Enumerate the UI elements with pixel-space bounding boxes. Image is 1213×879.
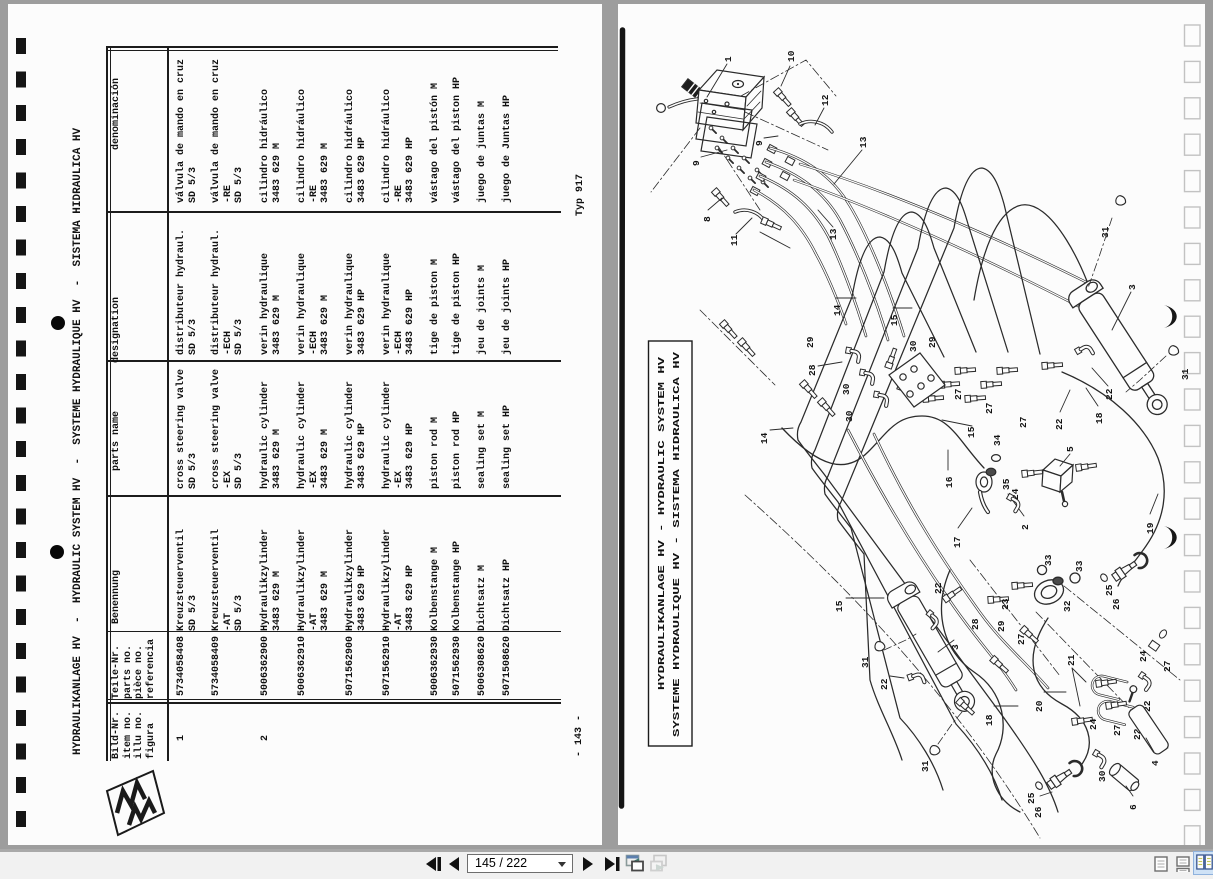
svg-text:18: 18 bbox=[984, 714, 995, 726]
svg-text:28: 28 bbox=[970, 618, 981, 630]
svg-text:9: 9 bbox=[754, 140, 765, 146]
svg-text:8: 8 bbox=[702, 216, 713, 222]
svg-text:35: 35 bbox=[1001, 478, 1012, 490]
svg-text:22: 22 bbox=[1054, 418, 1065, 430]
svg-text:17: 17 bbox=[952, 536, 963, 548]
svg-text:27: 27 bbox=[1016, 633, 1027, 645]
svg-text:31: 31 bbox=[860, 656, 871, 668]
svg-text:29: 29 bbox=[927, 336, 938, 348]
svg-text:24: 24 bbox=[1088, 718, 1099, 730]
svg-text:22: 22 bbox=[879, 678, 890, 690]
svg-text:6: 6 bbox=[1128, 804, 1139, 810]
svg-text:12: 12 bbox=[820, 94, 831, 106]
svg-text:23: 23 bbox=[1000, 598, 1011, 610]
svg-text:HYDRAULIKANLAGE HV - HYDRAUL: HYDRAULIKANLAGE HV - HYDRAULIC SYSTEM HV bbox=[656, 357, 667, 690]
svg-text:14: 14 bbox=[759, 432, 770, 444]
svg-text:16: 16 bbox=[944, 476, 955, 488]
svg-text:5: 5 bbox=[1065, 446, 1076, 452]
svg-text:31: 31 bbox=[1180, 368, 1191, 380]
svg-text:24: 24 bbox=[1138, 650, 1149, 662]
svg-text:1: 1 bbox=[723, 56, 734, 62]
svg-text:29: 29 bbox=[805, 336, 816, 348]
svg-text:10: 10 bbox=[786, 50, 797, 62]
svg-text:30: 30 bbox=[908, 340, 919, 352]
svg-text:28: 28 bbox=[807, 364, 818, 376]
svg-text:15: 15 bbox=[966, 426, 977, 438]
svg-text:32: 32 bbox=[1062, 600, 1073, 612]
svg-text:26: 26 bbox=[1111, 598, 1122, 610]
svg-text:27: 27 bbox=[1018, 416, 1029, 428]
svg-text:14: 14 bbox=[832, 304, 843, 316]
svg-text:33: 33 bbox=[1043, 554, 1054, 566]
svg-text:31: 31 bbox=[920, 760, 931, 772]
svg-text:9: 9 bbox=[691, 160, 702, 166]
svg-text:13: 13 bbox=[858, 136, 869, 148]
svg-text:33: 33 bbox=[1074, 560, 1085, 572]
svg-text:25: 25 bbox=[1026, 792, 1037, 804]
svg-text:29: 29 bbox=[996, 620, 1007, 632]
svg-text:4: 4 bbox=[1150, 760, 1161, 766]
svg-text:34: 34 bbox=[992, 434, 1003, 446]
svg-text:22: 22 bbox=[933, 582, 944, 594]
svg-text:30: 30 bbox=[1097, 770, 1108, 782]
svg-text:21: 21 bbox=[1066, 654, 1077, 666]
svg-text:15: 15 bbox=[889, 314, 900, 326]
svg-text:SYSTEME HYDRAULIQUE HV - SIS: SYSTEME HYDRAULIQUE HV - SISTEMA HIDRAUL… bbox=[671, 352, 682, 737]
svg-text:13: 13 bbox=[828, 228, 839, 240]
svg-text:25: 25 bbox=[1104, 584, 1115, 596]
svg-text:18: 18 bbox=[1094, 412, 1105, 424]
svg-text:27: 27 bbox=[1112, 724, 1123, 736]
svg-text:11: 11 bbox=[729, 234, 740, 246]
svg-text:27: 27 bbox=[984, 402, 995, 414]
svg-text:15: 15 bbox=[834, 600, 845, 612]
svg-text:30: 30 bbox=[841, 383, 852, 395]
svg-text:26: 26 bbox=[1033, 806, 1044, 818]
svg-text:19: 19 bbox=[1145, 522, 1156, 534]
svg-text:2: 2 bbox=[1020, 524, 1031, 530]
svg-text:20: 20 bbox=[1034, 700, 1045, 712]
svg-text:27: 27 bbox=[1162, 660, 1173, 672]
svg-text:3: 3 bbox=[1127, 284, 1138, 290]
svg-text:30: 30 bbox=[844, 410, 855, 422]
svg-text:27: 27 bbox=[953, 388, 964, 400]
